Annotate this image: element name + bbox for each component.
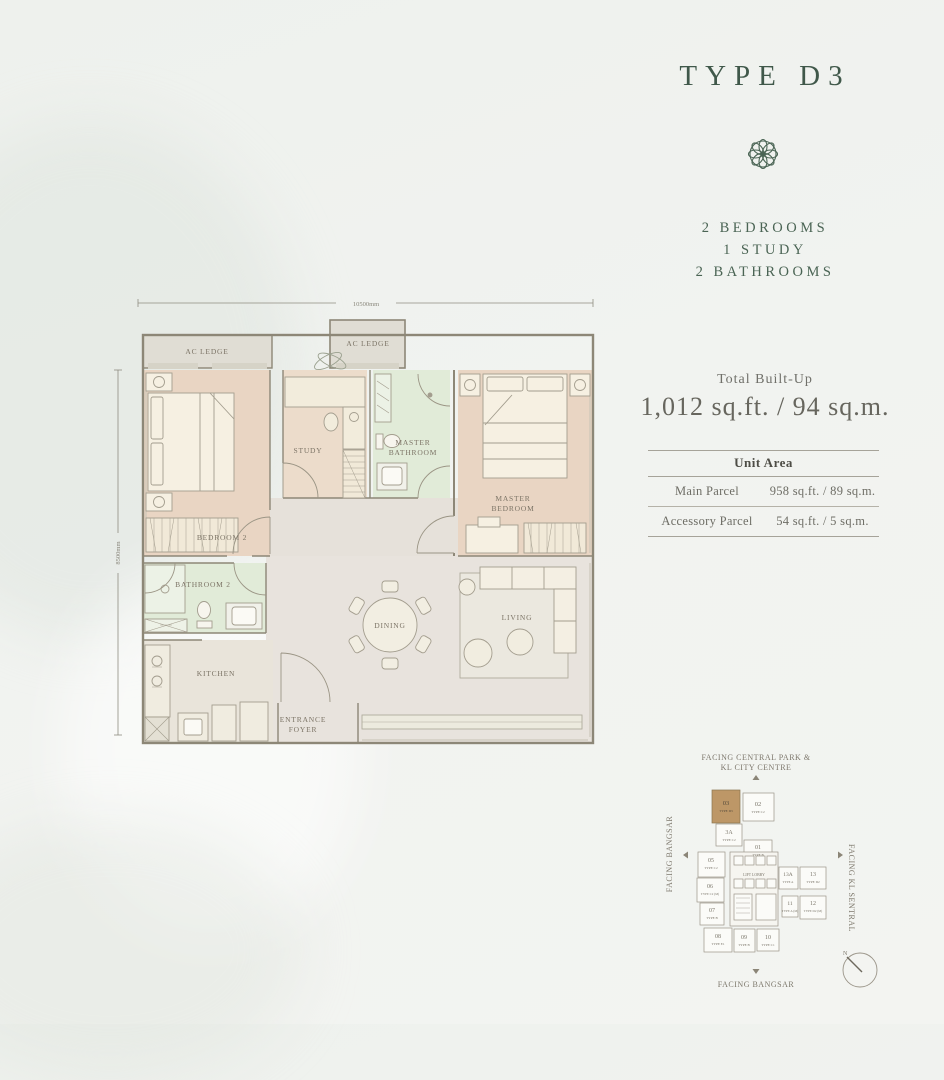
label-ac-ledge-2: AC LEDGE [346,339,389,348]
compass-icon: N [843,951,877,987]
cabinet [212,705,236,741]
facing-bottom-label: FACING BANGSAR [718,980,795,989]
sofa [480,567,576,589]
feature-bathrooms: 2 BATHROOMS [585,261,944,283]
dimension-height-label: 8500mm [115,541,122,564]
main-parcel-value: 958 sq.ft. / 89 sq.m. [766,484,879,499]
unit-13A-type: TYPE A [783,880,795,884]
unit-05-no: 05 [708,858,714,864]
page-title: TYPE D3 [585,60,944,93]
compass-n-label: N [843,951,848,957]
nightstand [460,374,480,396]
accessory-parcel-label: Accessory Parcel [648,514,766,529]
unit-12-type: TYPE D2 (M) [804,909,822,913]
unit-09-type: TYPE B [738,943,750,947]
coffee-table [507,629,533,655]
unit-07-type: TYPE B [706,916,718,920]
cabinet [240,702,268,741]
unit-01-type: TYPE B [752,853,764,857]
unit-02-type: TYPE C2 [751,810,765,814]
label-master-bathroom-1: MASTER [395,438,430,447]
chair [324,413,338,431]
bedroom2-furniture [146,373,238,552]
unit-09-no: 09 [741,935,747,941]
arrow-right-icon [838,852,843,859]
label-foyer-2: FOYER [289,725,318,734]
unit-01-no: 01 [755,845,761,851]
label-foyer-1: ENTRANCE [280,715,326,724]
floorplan: 10500mm 8500mm [100,295,610,760]
unit-13A [779,867,798,889]
label-living: LIVING [502,613,533,622]
unit-13 [800,867,826,889]
label-master-bedroom-2: BEDROOM [491,504,534,513]
armchair [464,639,492,667]
unit-13-no: 13 [810,872,816,878]
builtup-value: 1,012 sq.ft. / 94 sq.m. [585,392,944,422]
lift-lobby-label: LIFT LOBBY [743,873,765,877]
table-row: Main Parcel 958 sq.ft. / 89 sq.m. [648,477,879,506]
unit-area-table: Unit Area Main Parcel 958 sq.ft. / 89 sq… [648,450,879,537]
builtup-label: Total Built-Up [585,372,944,388]
table-row: Accessory Parcel 54 sq.ft. / 5 sq.m. [648,506,879,536]
unit-3A-no: 3A [725,830,733,836]
label-kitchen: KITCHEN [197,669,236,678]
feature-study: 1 STUDY [585,239,944,261]
unit-06-no: 06 [707,884,713,890]
unit-07-no: 07 [709,908,715,914]
arrow-up-icon [753,775,760,780]
facing-top-label-2: KL CITY CENTRE [721,763,792,772]
accessory-parcel-value: 54 sq.ft. / 5 sq.m. [766,514,879,529]
label-bedroom2: BEDROOM 2 [197,533,247,542]
unit-08 [704,928,732,952]
unit-11-type: TYPE A (M) [782,909,798,913]
unit-02-no: 02 [755,801,762,808]
unit-area-header: Unit Area [648,451,879,477]
unit-12-no: 12 [810,901,816,907]
ac-mesh-left [148,363,198,369]
nightstand [146,493,172,511]
desk [285,377,365,407]
keyplan: FACING CENTRAL PARK & KL CITY CENTRE FAC… [650,748,944,1029]
unit-07 [700,903,724,925]
background-watermark [0,820,300,1080]
dresser [466,525,518,553]
unit-08-no: 08 [715,934,721,940]
unit-10-no: 10 [765,935,771,941]
nightstand [146,373,172,391]
unit-13-type: TYPE D2 [806,880,820,884]
svg-text:TYPE D3: TYPE D3 [719,809,733,813]
arrow-down-icon [753,969,760,974]
arrow-left-icon [683,852,688,859]
unit-12 [800,896,826,919]
unit-06 [697,878,724,902]
unit-10-type: TYPE C1 [761,943,775,947]
unit-3A-type: TYPE C2 [722,838,736,842]
facing-left-label: FACING BANGSAR [665,816,674,893]
label-study: STUDY [293,446,322,455]
nightstand [570,374,590,396]
svg-text:03: 03 [723,800,730,807]
toilet [197,621,212,628]
feature-bedrooms: 2 BEDROOMS [585,217,944,239]
toilet [376,434,383,449]
dimension-width-label: 10500mm [353,301,379,308]
unit-05 [698,852,725,877]
ac-mesh-left2 [212,363,267,369]
unit-05-type: TYPE C2 [704,866,718,870]
unit-13A-no: 13A [783,872,793,878]
label-master-bedroom-1: MASTER [495,494,530,503]
label-dining: DINING [374,621,405,630]
label-ac-ledge-1: AC LEDGE [185,347,228,356]
unit-08-type: TYPE E1 [711,942,724,946]
label-bathroom2: BATHROOM 2 [175,580,231,589]
unit-11-no: 11 [787,901,793,907]
facing-right-label: FACING KL SENTRAL [847,844,856,932]
rosette-icon [741,132,785,176]
floor-corridor [270,498,458,556]
unit-features: 2 BEDROOMS 1 STUDY 2 BATHROOMS [585,217,944,283]
shower [145,565,185,613]
facing-top-label-1: FACING CENTRAL PARK & [701,753,810,762]
main-parcel-label: Main Parcel [648,484,766,499]
floorplan-brochure-page: { "header": { "title": "TYPE D3", "featu… [0,0,944,1024]
label-master-bathroom-2: BATHROOM [389,448,438,457]
unit-06-type: TYPE C2 (M) [701,892,719,896]
